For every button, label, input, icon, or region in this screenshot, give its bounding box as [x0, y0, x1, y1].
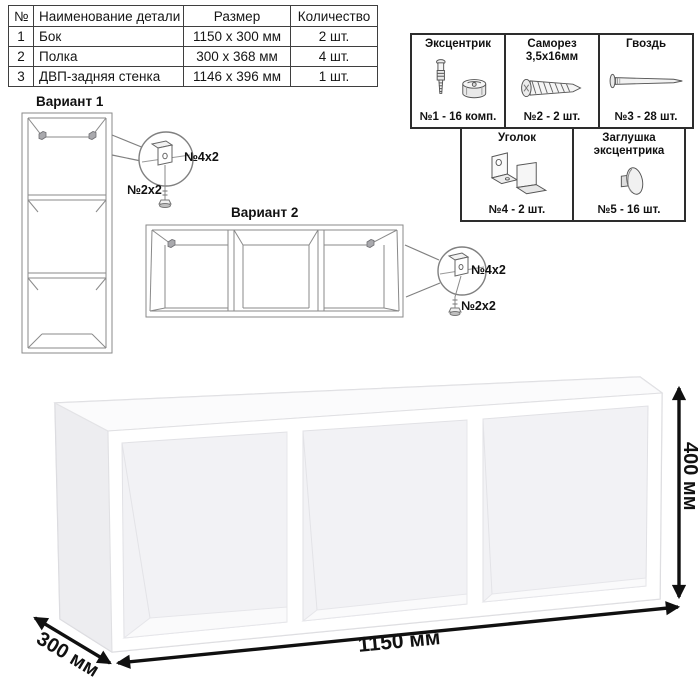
header-size: Размер [184, 6, 291, 27]
hardware-count: №5 - 16 шт. [598, 204, 661, 220]
hardware-item-cap: Заглушкаэксцентрика №5 - 16 шт. [574, 129, 684, 220]
hardware-title: Уголок [498, 129, 536, 145]
header-num: № [9, 6, 34, 27]
header-qty: Количество [291, 6, 378, 27]
nail-icon [600, 51, 692, 111]
parts-table: № Наименование детали Размер Количество … [8, 5, 378, 87]
variant1-screw-label: №2х2 [127, 183, 162, 197]
variant2-screw-label: №2х2 [461, 299, 496, 313]
hardware-title: Саморез3,5х16мм [526, 35, 578, 64]
header-name: Наименование детали [34, 6, 184, 27]
screw-icon [506, 64, 598, 111]
hardware-item-screw: Саморез3,5х16мм №2 - 2 шт. [506, 35, 600, 127]
table-header-row: № Наименование детали Размер Количество [9, 6, 378, 27]
variant1-title: Вариант 1 [36, 94, 103, 109]
variant2-title: Вариант 2 [231, 205, 298, 220]
part-size: 1146 х 396 мм [184, 67, 291, 87]
table-row: 3 ДВП-задняя стенка 1146 х 396 мм 1 шт. [9, 67, 378, 87]
hardware-box-row1: Эксцентрик [410, 33, 694, 129]
part-num: 1 [9, 27, 34, 47]
part-name: Полка [34, 47, 184, 67]
table-row: 2 Полка 300 х 368 мм 4 шт. [9, 47, 378, 67]
hardware-title: Эксцентрик [425, 35, 491, 51]
angle-bracket-icon [462, 145, 572, 204]
variant2-drawing [140, 220, 525, 332]
hardware-box-row2: Уголок №4 - 2 шт. Заглушкаэксц [460, 127, 686, 222]
hardware-item-bracket: Уголок №4 - 2 шт. [462, 129, 574, 220]
table-row: 1 Бок 1150 х 300 мм 2 шт. [9, 27, 378, 47]
eccentric-cam-and-bolt-icon [412, 51, 504, 111]
part-qty: 4 шт. [291, 47, 378, 67]
hardware-count: №2 - 2 шт. [524, 111, 580, 127]
hardware-count: №4 - 2 шт. [489, 204, 545, 220]
eccentric-cap-icon [574, 158, 684, 204]
assembly-instruction-sheet: № Наименование детали Размер Количество … [0, 0, 700, 690]
hardware-item-nail: Гвоздь №3 - 28 шт. [600, 35, 692, 127]
part-qty: 2 шт. [291, 27, 378, 47]
hardware-count: №1 - 16 комп. [420, 111, 497, 127]
hardware-item-eccentric: Эксцентрик [412, 35, 506, 127]
height-dimension-label: 400 мм [678, 442, 700, 511]
part-num: 2 [9, 47, 34, 67]
hardware-title: Заглушкаэксцентрика [594, 129, 665, 158]
hardware-count: №3 - 28 шт. [615, 111, 678, 127]
part-name: ДВП-задняя стенка [34, 67, 184, 87]
variant2-bracket-label: №4х2 [471, 263, 506, 277]
part-qty: 1 шт. [291, 67, 378, 87]
part-num: 3 [9, 67, 34, 87]
part-size: 300 х 368 мм [184, 47, 291, 67]
variant1-bracket-label: №4х2 [184, 150, 219, 164]
part-size: 1150 х 300 мм [184, 27, 291, 47]
part-name: Бок [34, 27, 184, 47]
hardware-title: Гвоздь [626, 35, 666, 51]
